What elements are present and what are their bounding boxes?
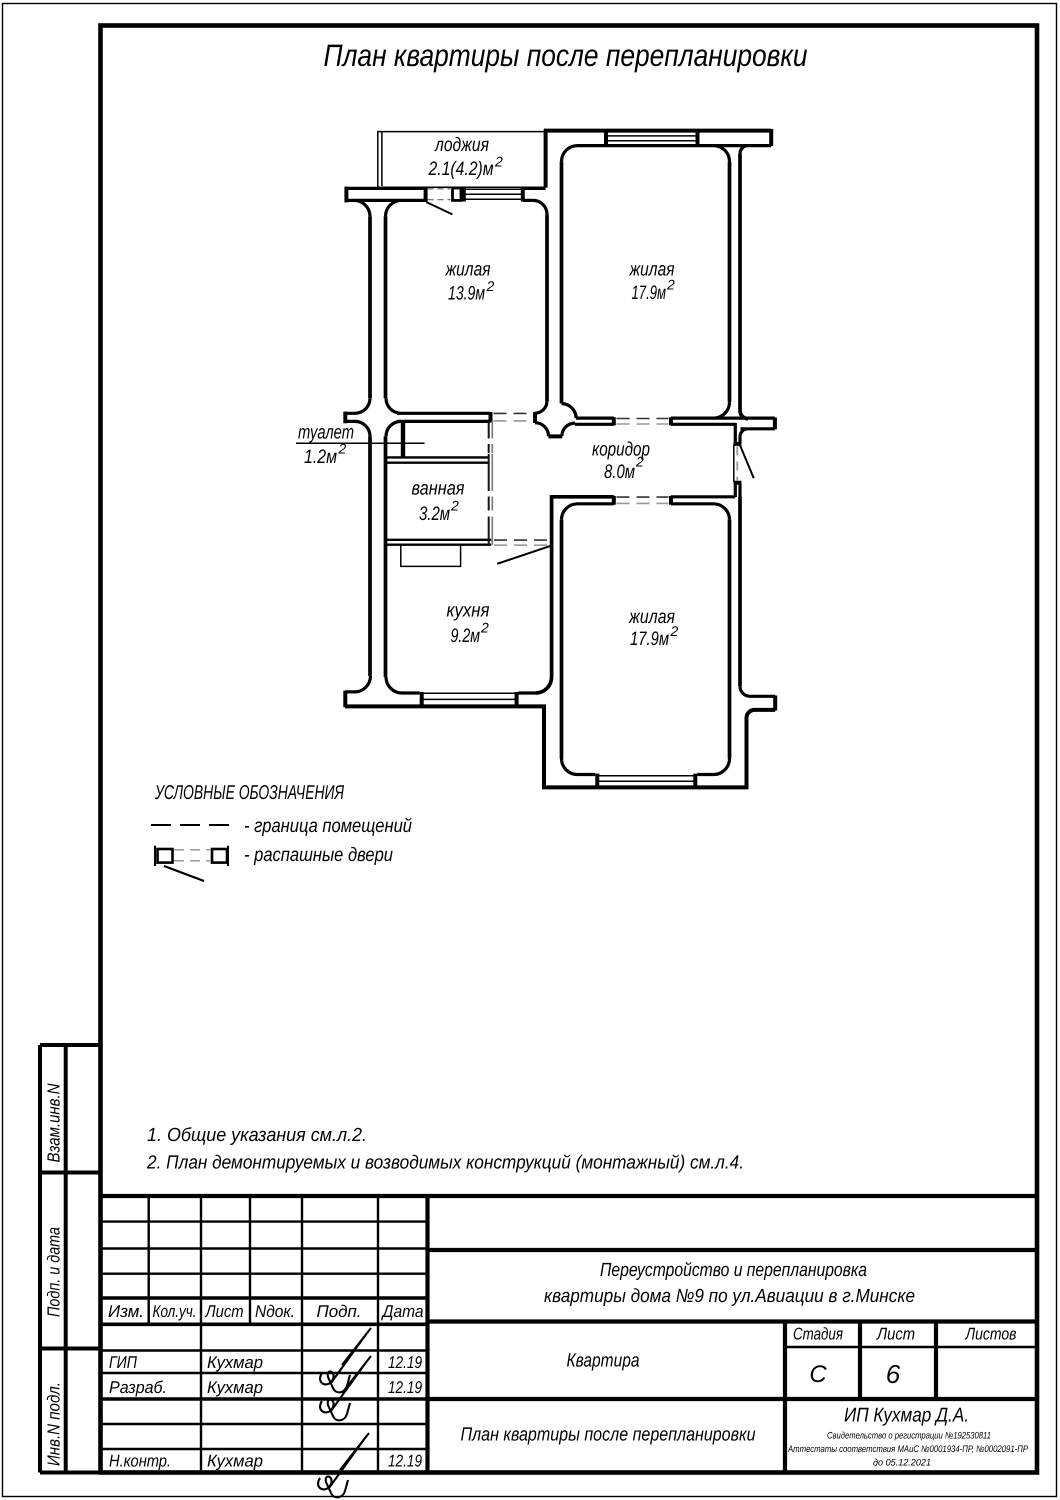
svg-text:Листов: Листов	[965, 1325, 1017, 1344]
svg-text:квартиры дома №9 по ул.Авиации: квартиры дома №9 по ул.Авиации в г.Минск…	[544, 1286, 915, 1307]
svg-text:лоджия: лоджия	[434, 134, 489, 156]
svg-text:Свидетельство о регистрации №1: Свидетельство о регистрации №192530811	[827, 1431, 991, 1442]
svg-text:- граница помещений: - граница помещений	[244, 815, 412, 837]
svg-text:Подп.: Подп.	[317, 1302, 362, 1321]
svg-text:2.1(4.2)м: 2.1(4.2)м	[428, 158, 494, 180]
svg-text:План квартиры после перепланир: План квартиры после перепланировки	[324, 38, 808, 73]
svg-text:13.9м: 13.9м	[448, 283, 485, 305]
svg-text:12.19: 12.19	[388, 1353, 422, 1372]
svg-text:С: С	[809, 1361, 827, 1388]
svg-text:2: 2	[666, 277, 675, 293]
svg-text:Квартира: Квартира	[567, 1351, 640, 1372]
svg-text:до 05.12.2021: до 05.12.2021	[873, 1458, 931, 1469]
svg-text:17.9м: 17.9м	[632, 282, 667, 304]
svg-text:6: 6	[886, 1359, 901, 1389]
svg-text:2: 2	[494, 154, 503, 170]
svg-text:Стадия: Стадия	[793, 1325, 843, 1344]
svg-text:План квартиры после перепланир: План квартиры после перепланировки	[461, 1425, 756, 1446]
svg-text:Кухмар: Кухмар	[207, 1378, 263, 1397]
svg-text:ИП Кухмар Д.А.: ИП Кухмар Д.А.	[844, 1405, 969, 1427]
svg-text:Лист: Лист	[876, 1325, 915, 1344]
svg-text:2: 2	[480, 620, 489, 636]
svg-text:Nдок.: Nдок.	[255, 1302, 295, 1321]
svg-text:12.19: 12.19	[388, 1378, 422, 1397]
svg-text:Кол.уч.: Кол.уч.	[153, 1302, 197, 1321]
svg-text:1.2м: 1.2м	[304, 446, 337, 468]
svg-text:ванная: ванная	[412, 477, 465, 499]
svg-text:- распашные двери: - распашные двери	[244, 844, 393, 866]
svg-text:Лист: Лист	[205, 1302, 244, 1321]
svg-text:9.2м: 9.2м	[451, 625, 481, 647]
svg-text:3.2м: 3.2м	[419, 503, 450, 525]
svg-text:жилая: жилая	[628, 606, 675, 628]
svg-text:12.19: 12.19	[388, 1452, 422, 1471]
svg-text:Взам.инв.N: Взам.инв.N	[44, 1083, 64, 1162]
svg-text:2: 2	[486, 278, 495, 294]
svg-text:8.0м: 8.0м	[604, 461, 635, 483]
svg-text:Аттестаты соответствия МАиС №0: Аттестаты соответствия МАиС №0001934-ПР,…	[787, 1444, 1028, 1455]
svg-text:2: 2	[635, 454, 644, 470]
svg-text:Дата: Дата	[381, 1302, 424, 1321]
svg-text:Переустройство и перепланировк: Переустройство и перепланировка	[600, 1260, 867, 1281]
svg-text:Подп. и дата: Подп. и дата	[44, 1227, 64, 1317]
svg-text:Изм.: Изм.	[108, 1302, 144, 1321]
svg-text:УСЛОВНЫЕ ОБОЗНАЧЕНИЯ: УСЛОВНЫЕ ОБОЗНАЧЕНИЯ	[154, 782, 344, 804]
svg-text:2: 2	[450, 498, 459, 514]
svg-text:жилая: жилая	[445, 259, 491, 281]
svg-text:1. Общие указания см.л.2.: 1. Общие указания см.л.2.	[147, 1125, 367, 1146]
svg-text:кухня: кухня	[447, 600, 490, 622]
svg-text:Кухмар: Кухмар	[207, 1353, 263, 1372]
svg-text:Н.контр.: Н.контр.	[109, 1452, 171, 1471]
svg-text:Разраб.: Разраб.	[109, 1378, 167, 1397]
svg-text:2: 2	[338, 441, 347, 457]
svg-text:Инв.N подл.: Инв.N подл.	[44, 1382, 64, 1466]
svg-text:2: 2	[670, 623, 679, 639]
svg-text:ГИП: ГИП	[109, 1353, 138, 1372]
svg-text:2. План демонтируемых и возвод: 2. План демонтируемых и возводимых конст…	[146, 1153, 744, 1174]
svg-text:17.9м: 17.9м	[630, 628, 669, 650]
svg-text:Кухмар: Кухмар	[207, 1452, 263, 1471]
